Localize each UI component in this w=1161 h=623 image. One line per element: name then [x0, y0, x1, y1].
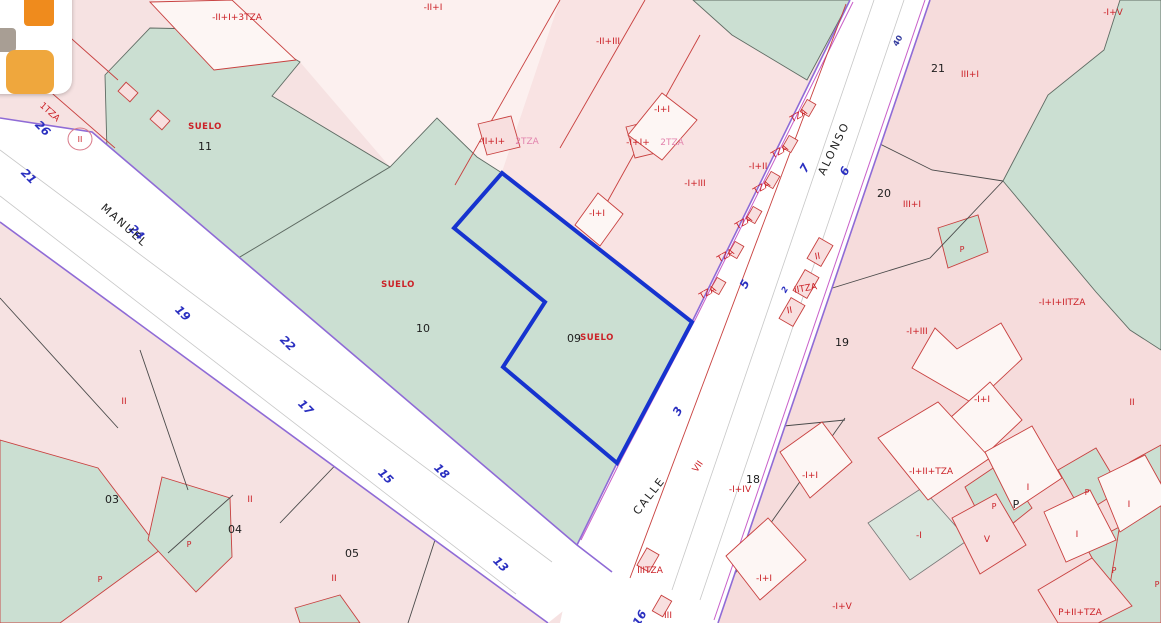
map-label-p: P: [1112, 566, 1117, 575]
app-logo[interactable]: [0, 0, 72, 94]
map-label-05: 05: [345, 547, 359, 560]
map-label-ii: II: [121, 397, 126, 407]
map-label-ii: -I+I+: [626, 138, 650, 148]
map-label-2tza: 2TZA: [660, 138, 684, 148]
map-label-suelo: SUELO: [188, 122, 222, 132]
map-label-iiv: -I+IV: [729, 485, 752, 495]
map-label-iii: III: [664, 611, 672, 621]
map-label-iiii: III+I: [903, 200, 921, 210]
map-label-i: I: [1027, 483, 1030, 493]
map-label-09: 09: [567, 332, 581, 345]
logo-amber-square-icon: [6, 50, 54, 94]
map-label-p: P: [960, 245, 965, 254]
map-label-iiii: III+I: [961, 70, 979, 80]
map-label-ii: -I+I: [589, 209, 605, 219]
logo-gray-square-icon: [0, 28, 16, 52]
map-label-iv: -I+V: [1103, 8, 1123, 18]
map-label-ii: II: [247, 495, 252, 505]
map-label-p: P: [98, 575, 103, 584]
cadastral-map-viewer: -II+I+3TZA-II+I-II+III-I+V2TZA1TZAIISUEL…: [0, 0, 1161, 623]
map-label-21: 21: [931, 62, 945, 75]
map-label-iii3tza: -II+I+3TZA: [212, 13, 263, 23]
map-label-ii: -I+I: [756, 574, 772, 584]
map-label-iiii: -I+III: [906, 327, 927, 337]
map-label-p: P: [1013, 498, 1020, 511]
map-label-11: 11: [198, 140, 212, 153]
cadastral-map-canvas[interactable]: -II+I+3TZA-II+I-II+III-I+V2TZA1TZAIISUEL…: [0, 0, 1161, 623]
map-label-p: P: [1155, 580, 1160, 589]
map-label-2tza: 2TZA: [515, 137, 539, 147]
map-label-ii: II: [1129, 398, 1134, 408]
map-label-p: P: [1085, 488, 1090, 497]
logo-orange-square-icon: [24, 0, 54, 26]
map-label-p: P: [992, 502, 997, 511]
map-label-i: I: [1076, 530, 1079, 540]
map-label-iiii: -I+III: [684, 179, 705, 189]
map-label-v: V: [984, 535, 991, 545]
map-label-iii: -II+I: [424, 3, 443, 13]
map-label-ii: -I+I: [654, 105, 670, 115]
map-label-19: 19: [835, 336, 849, 349]
map-label-iiitza: -I+II+TZA: [909, 467, 954, 477]
map-label-10: 10: [416, 322, 430, 335]
map-label-03: 03: [105, 493, 119, 506]
map-label-04: 04: [228, 523, 242, 536]
map-label-i: I: [1128, 500, 1131, 510]
map-label-iiitza: IIITZA: [637, 566, 664, 576]
map-label-ii: -I+I: [974, 395, 990, 405]
map-label-iii: -I+II: [749, 162, 768, 172]
map-label-piitza: P+II+TZA: [1058, 608, 1102, 618]
map-label-p: P: [187, 540, 192, 549]
map-label-iiiii: -II+III: [596, 37, 620, 47]
map-label-ii: II: [331, 574, 336, 584]
map-label-iiiitza: -I+I+IITZA: [1039, 298, 1087, 308]
map-label-20: 20: [877, 187, 891, 200]
map-label-ii: -I+I: [802, 471, 818, 481]
map-label-iii: -II+I+: [479, 137, 505, 147]
map-label-ii: II: [78, 135, 83, 144]
map-label-i: -I: [916, 531, 922, 541]
map-label-suelo: SUELO: [381, 280, 415, 290]
map-label-suelo: SUELO: [580, 333, 614, 343]
map-label-iv: -I+V: [832, 602, 852, 612]
